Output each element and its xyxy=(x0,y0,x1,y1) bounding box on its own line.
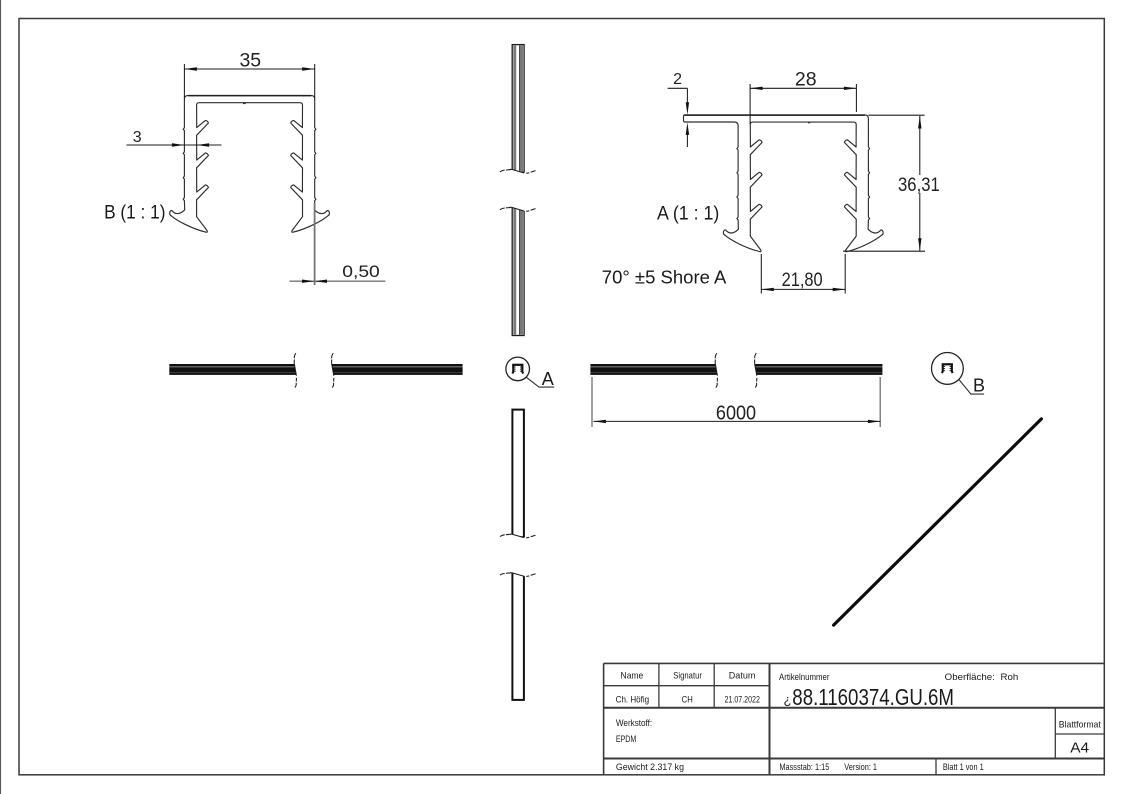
svg-text:28: 28 xyxy=(795,68,817,90)
svg-text:CH: CH xyxy=(682,695,693,705)
svg-text:6000: 6000 xyxy=(716,403,756,425)
svg-text:36,31: 36,31 xyxy=(898,174,940,196)
svg-text:Oberfläche:: Oberfläche: xyxy=(945,672,995,682)
svg-text:70° ±5 Shore A: 70° ±5 Shore A xyxy=(602,267,727,288)
svg-text:21,80: 21,80 xyxy=(782,269,823,291)
svg-text:A: A xyxy=(542,369,554,389)
svg-text:Gewicht 2.317 kg: Gewicht 2.317 kg xyxy=(616,762,684,772)
svg-text:2: 2 xyxy=(673,71,682,88)
svg-text:¿: ¿ xyxy=(784,692,792,707)
svg-text:Roh: Roh xyxy=(1001,672,1019,682)
svg-text:Name: Name xyxy=(621,671,644,681)
svg-text:35: 35 xyxy=(239,50,261,72)
svg-text:B: B xyxy=(973,375,985,395)
svg-text:Blattformat: Blattformat xyxy=(1059,720,1101,730)
svg-text:Datum: Datum xyxy=(729,671,756,681)
svg-text:Blatt 1 von 1: Blatt 1 von 1 xyxy=(943,762,984,772)
svg-text:88.1160374.GU.6M: 88.1160374.GU.6M xyxy=(792,684,954,710)
svg-text:Version: 1: Version: 1 xyxy=(844,762,877,772)
svg-text:Signatur: Signatur xyxy=(673,671,702,681)
svg-text:21.07.2022: 21.07.2022 xyxy=(725,695,760,705)
svg-text:Massstab: 1:15: Massstab: 1:15 xyxy=(779,762,829,772)
svg-text:Werkstoff:: Werkstoff: xyxy=(616,718,652,728)
svg-text:A (1 : 1): A (1 : 1) xyxy=(657,204,719,225)
svg-text:Ch. Höfig: Ch. Höfig xyxy=(616,695,650,705)
svg-text:0,50: 0,50 xyxy=(342,262,380,281)
svg-text:A4: A4 xyxy=(1070,741,1089,757)
svg-text:3: 3 xyxy=(133,129,142,146)
svg-text:Artikelnummer: Artikelnummer xyxy=(779,672,830,682)
svg-text:EPDM: EPDM xyxy=(616,734,636,744)
svg-text:B (1 : 1): B (1 : 1) xyxy=(104,203,165,224)
